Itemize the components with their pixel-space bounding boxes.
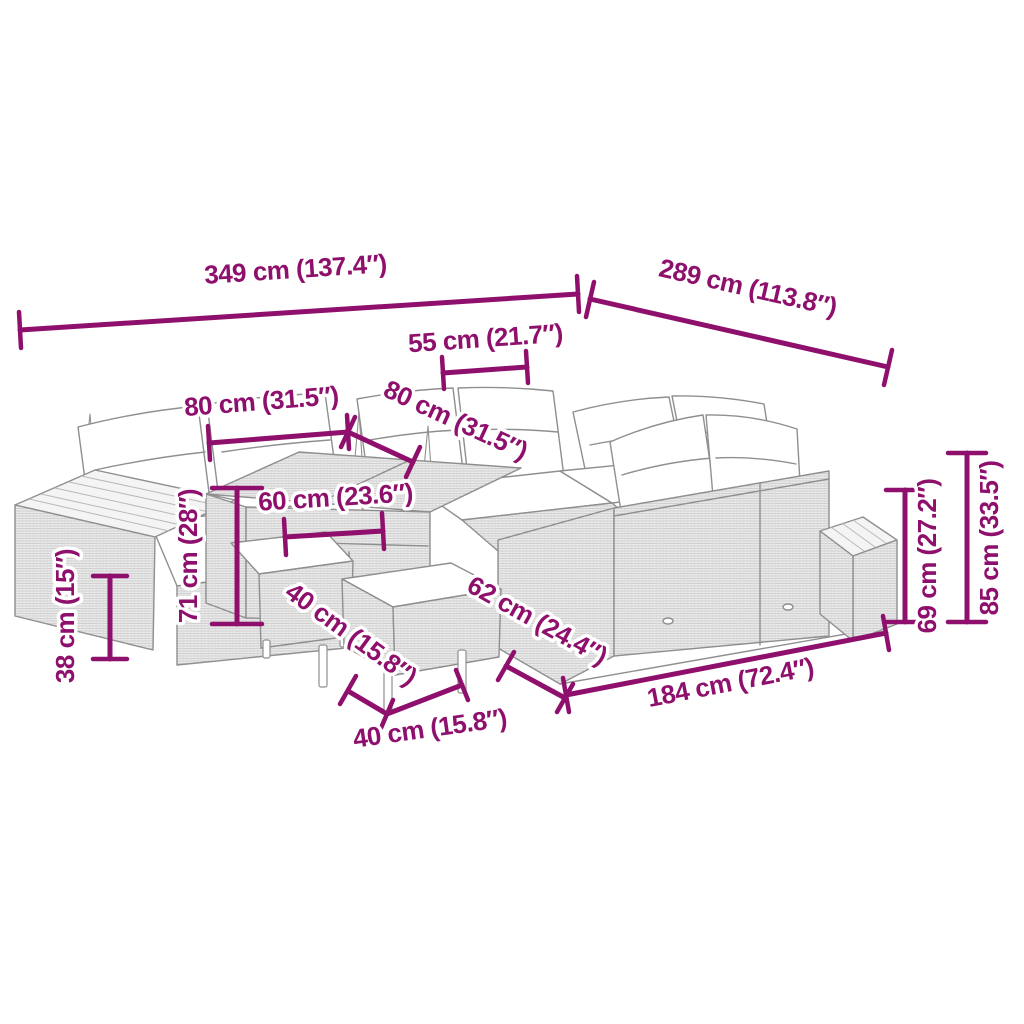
dim-seat-width-label: 55 cm (21.7″) (407, 318, 564, 359)
dim-seat-width: 55 cm (21.7″) (407, 318, 564, 389)
screw-cap (783, 604, 793, 610)
screw-cap (663, 618, 673, 624)
dim-overall-depth-label: 289 cm (113.8″) (656, 253, 839, 322)
diagram-canvas: 349 cm (137.4″) 289 cm (113.8″) 55 cm (2… (0, 0, 1024, 1024)
dim-backrest-height-label: 69 cm (27.2″) (912, 479, 942, 634)
dim-overall-height: 85 cm (33.5″) (948, 453, 1004, 622)
dim-overall-height-label: 85 cm (33.5″) (974, 461, 1004, 616)
dim-stool-width-label: 40 cm (15.8″) (351, 702, 508, 753)
dimension-diagram: 349 cm (137.4″) 289 cm (113.8″) 55 cm (2… (0, 0, 1024, 1024)
dim-stool-height-label: 38 cm (15″) (50, 549, 80, 683)
dim-table-height-label: 71 cm (28″) (173, 489, 203, 623)
dim-sofa-length-label: 184 cm (72.4″) (645, 651, 816, 713)
dim-overall-width-label: 349 cm (137.4″) (203, 248, 387, 290)
dim-overall-depth: 289 cm (113.8″) (586, 253, 892, 385)
